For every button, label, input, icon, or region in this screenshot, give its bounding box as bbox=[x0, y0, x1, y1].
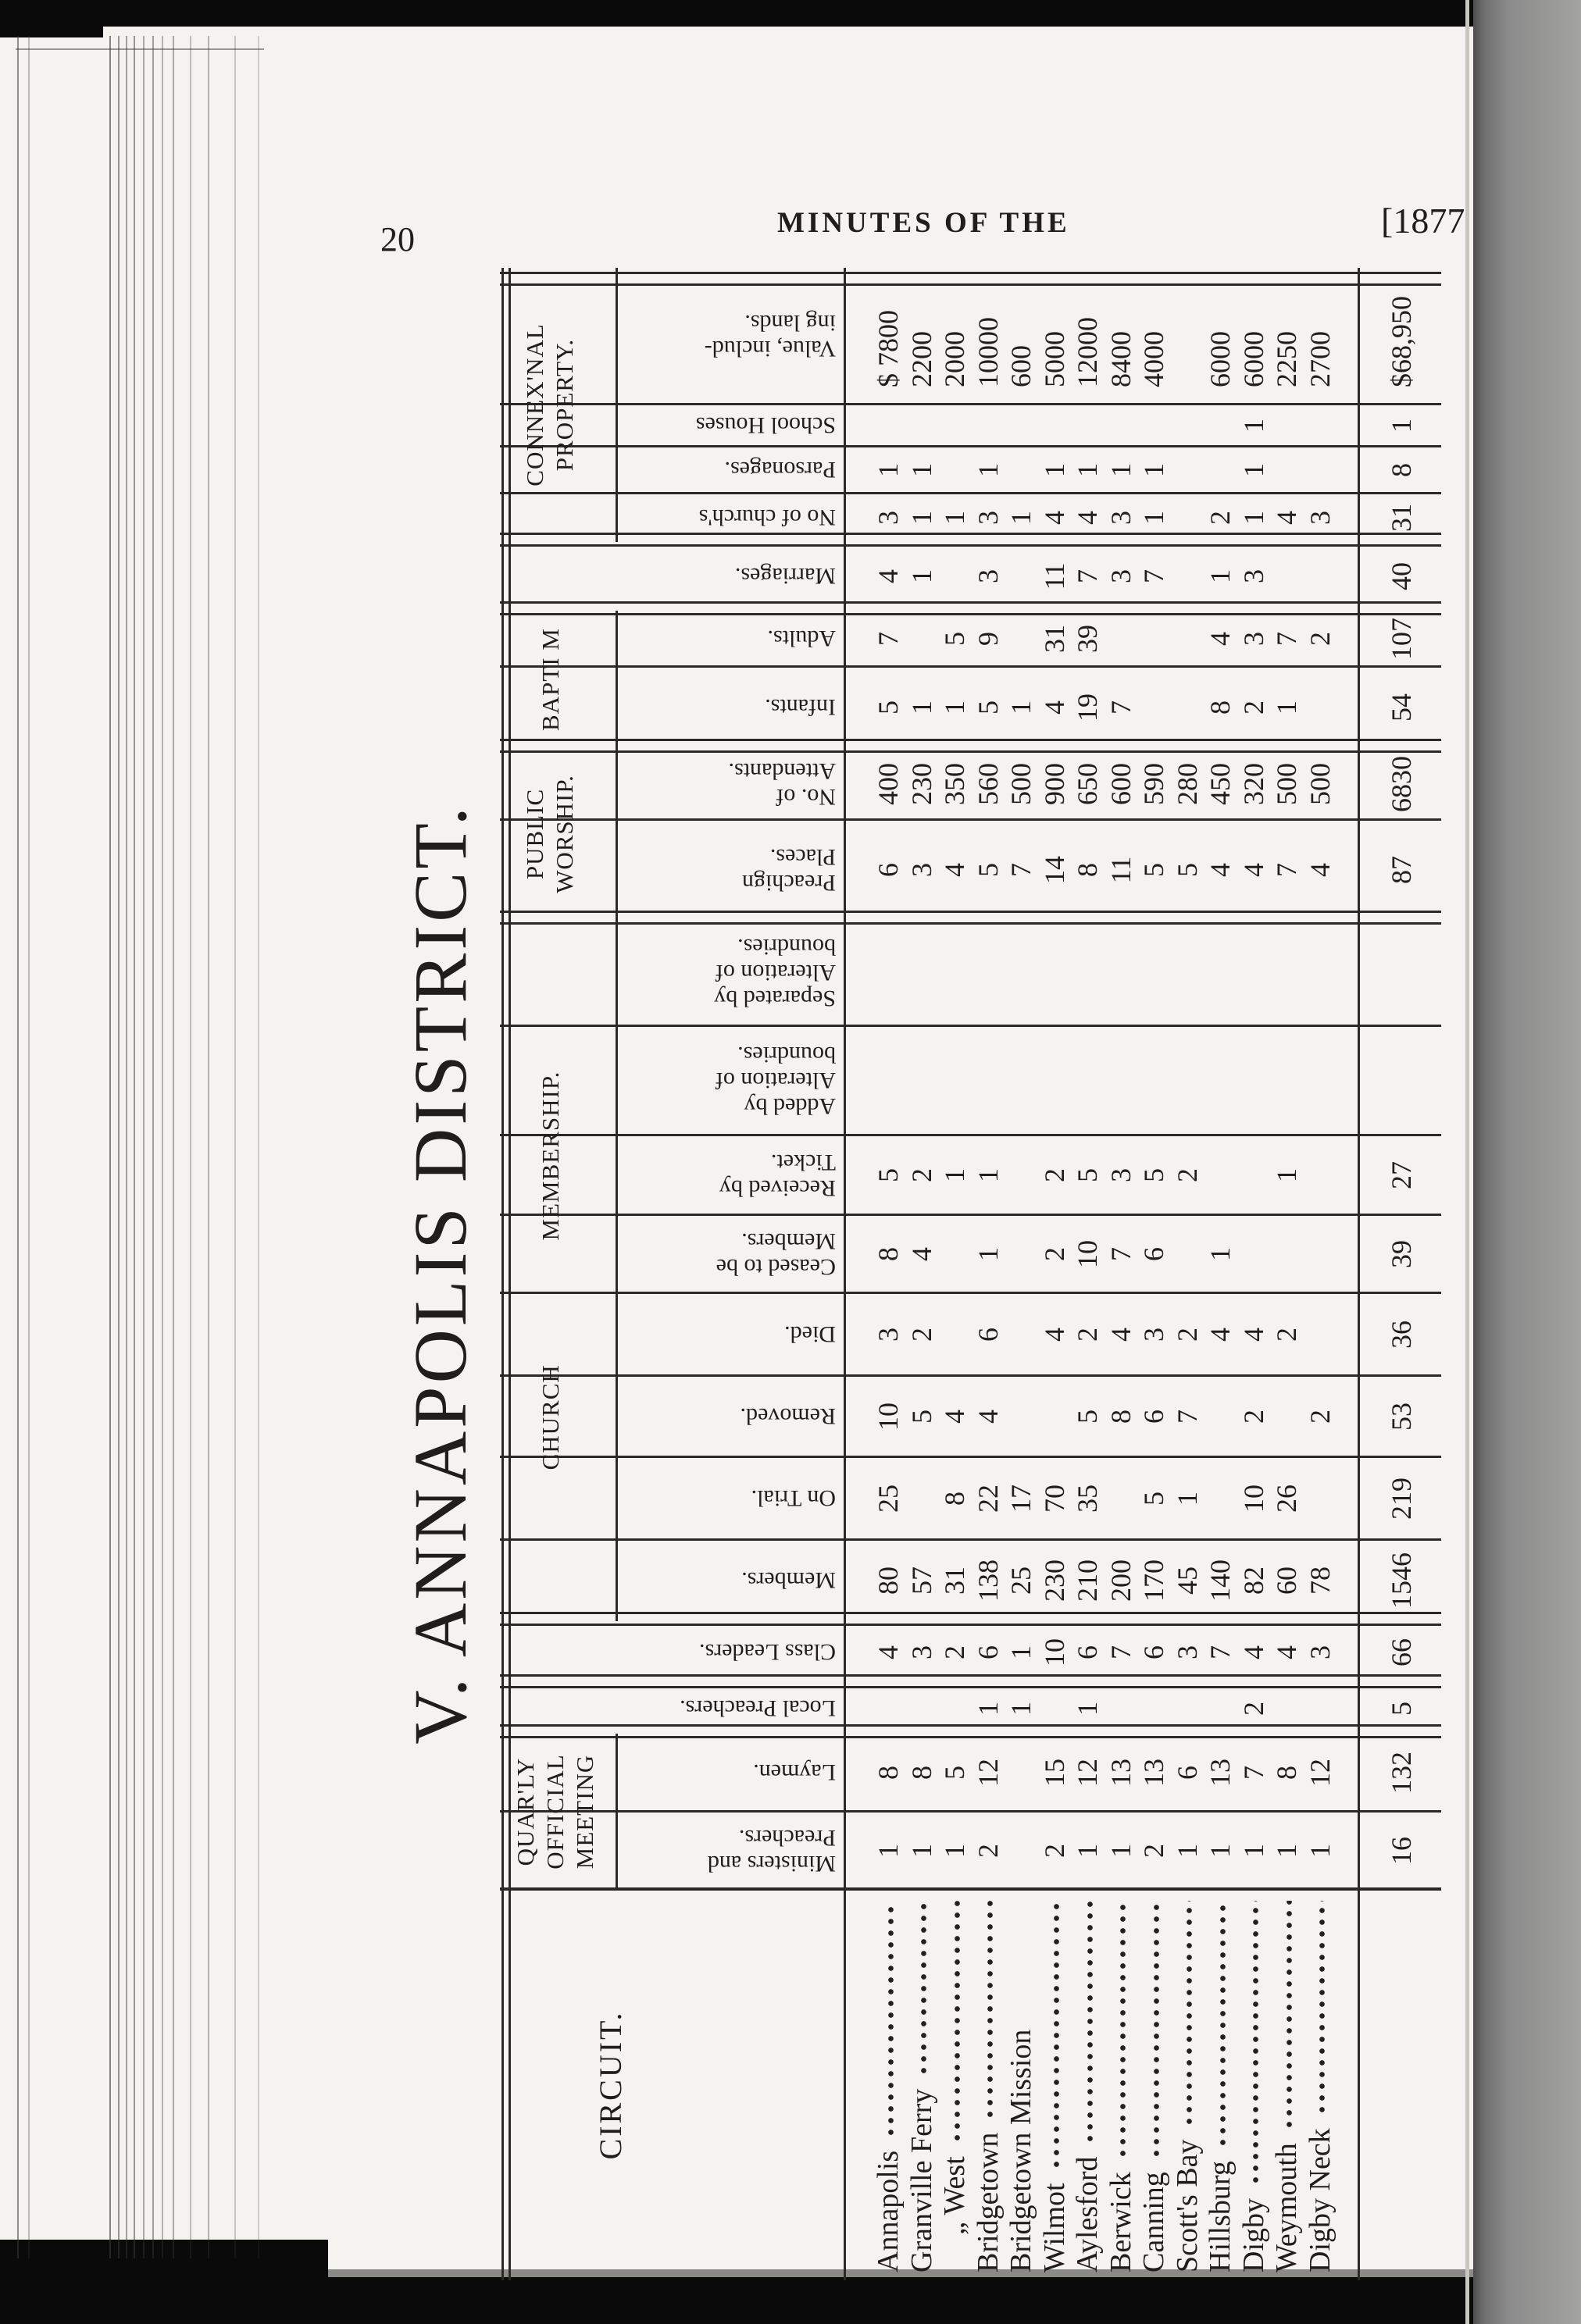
table-cell: 1 bbox=[1270, 1812, 1304, 1890]
column-header: On Trial. bbox=[619, 1457, 844, 1540]
table-cell: 1 bbox=[1038, 447, 1072, 494]
circuit-name: „ West bbox=[938, 2156, 971, 2235]
table-cell: 60 bbox=[1270, 1540, 1304, 1621]
circuit-name-cell: Canning bbox=[1137, 1890, 1171, 2280]
circuit-name-cell: Granville Ferry bbox=[905, 1890, 939, 2280]
table-cell: 5 bbox=[972, 820, 1005, 920]
dot-leader bbox=[1150, 1901, 1162, 2159]
dot-leader bbox=[984, 1901, 997, 2120]
table-cell: 5 bbox=[872, 667, 905, 748]
circuit-name: Berwick bbox=[1105, 2172, 1137, 2272]
table-cell: 1 bbox=[1237, 494, 1271, 542]
scan-black-corner-bottom-left bbox=[0, 2240, 328, 2324]
table-cell: 2 bbox=[1304, 1376, 1337, 1457]
totals-cell: 5 bbox=[1361, 1684, 1441, 1734]
group-divider-rule bbox=[616, 268, 618, 542]
table-cell: 70 bbox=[1038, 1457, 1072, 1540]
table-cell: 25 bbox=[872, 1457, 905, 1540]
running-title: MINUTES OF THE bbox=[777, 206, 1070, 240]
table-cell: 1 bbox=[972, 1215, 1005, 1293]
table-cell: 57 bbox=[905, 1540, 939, 1621]
table-cell: 4 bbox=[1237, 1621, 1271, 1684]
page-edge-line bbox=[118, 36, 120, 2258]
dot-leader bbox=[1250, 1901, 1262, 2186]
table-cell: 2700 bbox=[1304, 268, 1337, 405]
totals-cell: 1546 bbox=[1361, 1540, 1441, 1621]
table-cell: 3 bbox=[1304, 1621, 1337, 1684]
page-number: 20 bbox=[380, 219, 415, 259]
page-edge-line bbox=[109, 36, 111, 2258]
table-cell: 39 bbox=[1071, 611, 1105, 667]
page-edge-line bbox=[173, 36, 174, 2258]
table-cell: 4 bbox=[1237, 820, 1271, 920]
table-cell: 1 bbox=[1105, 447, 1138, 494]
table-cell: 3 bbox=[972, 494, 1005, 542]
table-cell: 7 bbox=[1204, 1621, 1237, 1684]
group-header: PUBLICWORSHIP. bbox=[520, 748, 580, 920]
table-cell: 1 bbox=[1105, 1812, 1138, 1890]
table-cell: 3 bbox=[1304, 494, 1337, 542]
table-cell: 8 bbox=[1105, 1376, 1138, 1457]
table-cell: 10 bbox=[1237, 1457, 1271, 1540]
table-cell: 10000 bbox=[972, 268, 1005, 405]
table-cell: 2 bbox=[1038, 1812, 1072, 1890]
circuit-name-cell: Digby bbox=[1237, 1890, 1271, 2280]
table-cell: 13 bbox=[1137, 1734, 1171, 1812]
circuit-name: Bridgetown bbox=[972, 2133, 1005, 2272]
table-cell: 4 bbox=[1038, 494, 1072, 542]
table-cell: 1 bbox=[1171, 1812, 1204, 1890]
circuit-name-cell: Bridgetown bbox=[972, 1890, 1005, 2280]
page-edge-line bbox=[134, 36, 135, 2258]
table-cell: 1 bbox=[872, 447, 905, 494]
table-cell: 1 bbox=[1005, 667, 1038, 748]
table-cell: 6000 bbox=[1237, 268, 1271, 405]
table-cell: 3 bbox=[972, 542, 1005, 611]
column-header: Removed. bbox=[619, 1376, 844, 1457]
group-divider-rule bbox=[616, 920, 618, 1621]
scan-gray-strip-right bbox=[1473, 0, 1581, 2324]
table-cell: 7 bbox=[1105, 667, 1138, 748]
scan-black-band-top bbox=[0, 0, 1581, 27]
table-cell: 2 bbox=[1038, 1135, 1072, 1215]
circuit-name: Aylesford bbox=[1071, 2157, 1104, 2272]
table-cell: 3 bbox=[1237, 542, 1271, 611]
table-cell: 320 bbox=[1237, 748, 1271, 820]
totals-cell: 40 bbox=[1361, 542, 1441, 611]
page-edge-line bbox=[190, 36, 191, 2258]
table-cell: 6 bbox=[1171, 1734, 1204, 1812]
totals-rule bbox=[1358, 268, 1360, 2280]
page-right-edge bbox=[1465, 0, 1469, 2324]
circuit-name-cell: Bridgetown Mission bbox=[1005, 1890, 1038, 2280]
totals-cell: 6830 bbox=[1361, 748, 1441, 820]
table-cell: 1 bbox=[972, 1135, 1005, 1215]
table-cell: 4 bbox=[1270, 1621, 1304, 1684]
table-cell: 500 bbox=[1005, 748, 1038, 820]
column-header: Members. bbox=[619, 1540, 844, 1621]
dot-leader bbox=[1083, 1901, 1096, 2144]
column-header: Class Leaders. bbox=[516, 1621, 844, 1684]
table-cell: 80 bbox=[872, 1540, 905, 1621]
table-cell: 230 bbox=[1038, 1540, 1072, 1621]
column-header: School Houses bbox=[619, 405, 844, 447]
totals-cell: 36 bbox=[1361, 1293, 1441, 1376]
circuit-name: Digby Neck bbox=[1304, 2128, 1337, 2272]
circuit-name-cell: Berwick bbox=[1105, 1890, 1138, 2280]
table-cell: 7 bbox=[1005, 820, 1038, 920]
table-cell: 12 bbox=[1304, 1734, 1337, 1812]
circuit-name: Bridgetown Mission bbox=[1005, 2030, 1037, 2272]
table-cell: 5000 bbox=[1038, 268, 1072, 405]
table-cell: 1 bbox=[1204, 542, 1237, 611]
table-cell: 11 bbox=[1038, 542, 1072, 611]
totals-cell: 16 bbox=[1361, 1812, 1441, 1890]
group-header: BAPTI M bbox=[536, 611, 566, 748]
table-cell: 8 bbox=[1204, 667, 1237, 748]
table-cell: 3 bbox=[905, 1621, 939, 1684]
table-cell: 9 bbox=[972, 611, 1005, 667]
table-cell: 4 bbox=[1204, 820, 1237, 920]
circuit-name: Weymouth bbox=[1270, 2143, 1303, 2272]
table-title: V. ANNAPOLIS DISTRICT. bbox=[397, 268, 498, 2280]
column-header: Marriages. bbox=[516, 542, 844, 611]
table-top-border bbox=[509, 268, 511, 2280]
table-cell: 2 bbox=[938, 1621, 972, 1684]
table-cell: 450 bbox=[1204, 748, 1237, 820]
table-cell: 1 bbox=[1071, 447, 1105, 494]
table-cell: 230 bbox=[905, 748, 939, 820]
circuit-name: Annapolis bbox=[872, 2151, 905, 2272]
column-header: Ministers andPreachers. bbox=[619, 1812, 844, 1890]
table-cell: 600 bbox=[1105, 748, 1138, 820]
table-cell: 600 bbox=[1005, 268, 1038, 405]
table-cell: 45 bbox=[1171, 1540, 1204, 1621]
table-cell: 10 bbox=[1038, 1621, 1072, 1684]
table-cell: 3 bbox=[1105, 1135, 1138, 1215]
year-reference: [1877 bbox=[1381, 200, 1465, 241]
table-cell: 1 bbox=[1237, 405, 1271, 447]
totals-cell: $68,950 bbox=[1361, 268, 1441, 405]
table-cell: 280 bbox=[1171, 748, 1204, 820]
page-edge-line bbox=[234, 36, 236, 2258]
table-cell: 2 bbox=[1237, 1684, 1271, 1734]
table-cell: 35 bbox=[1071, 1457, 1105, 1540]
table-cell: 1 bbox=[938, 494, 972, 542]
table-cell: 6 bbox=[972, 1621, 1005, 1684]
column-header: Value, includ-ing lands. bbox=[619, 268, 844, 405]
table-cell: 7 bbox=[1171, 1376, 1204, 1457]
table-cell: 19 bbox=[1071, 667, 1105, 748]
table-cell: 8 bbox=[1071, 820, 1105, 920]
table-cell: 4 bbox=[872, 542, 905, 611]
table-cell: 140 bbox=[1204, 1540, 1237, 1621]
table-cell: 13 bbox=[1105, 1734, 1138, 1812]
table-cell: 1 bbox=[905, 447, 939, 494]
totals-cell: 39 bbox=[1361, 1215, 1441, 1293]
table-cell: 4 bbox=[1071, 494, 1105, 542]
dot-leader bbox=[1316, 1901, 1329, 2115]
table-cell: 8 bbox=[938, 1457, 972, 1540]
table-cell: 500 bbox=[1270, 748, 1304, 820]
column-header: No of church's bbox=[619, 494, 844, 542]
table-cell: 22 bbox=[972, 1457, 1005, 1540]
circuit-name: Canning bbox=[1137, 2172, 1170, 2272]
table-cell: 11 bbox=[1105, 820, 1138, 920]
table-cell: 6000 bbox=[1204, 268, 1237, 405]
table-cell: 4 bbox=[1204, 1293, 1237, 1376]
table-cell: 1 bbox=[1137, 494, 1171, 542]
totals-cell: 219 bbox=[1361, 1457, 1441, 1540]
dot-leader bbox=[1051, 1901, 1063, 2170]
table-cell: 5 bbox=[872, 1135, 905, 1215]
table-cell: 10 bbox=[872, 1376, 905, 1457]
dot-leader bbox=[918, 1901, 930, 2076]
table-cell: 1 bbox=[972, 447, 1005, 494]
table-cell: 3 bbox=[1105, 542, 1138, 611]
page-edge-line bbox=[28, 36, 30, 2258]
table-cell: 1 bbox=[1304, 1812, 1337, 1890]
column-header: Ceased to beMembers. bbox=[619, 1215, 844, 1293]
table-cell: 4 bbox=[872, 1621, 905, 1684]
circuit-name-cell: Weymouth bbox=[1270, 1890, 1304, 2280]
table-cell: 10 bbox=[1071, 1215, 1105, 1293]
table-cell: 1 bbox=[1137, 447, 1171, 494]
column-header: Died. bbox=[619, 1293, 844, 1376]
column-header: Received byTicket. bbox=[619, 1135, 844, 1215]
table-cell: 1 bbox=[1005, 1621, 1038, 1684]
column-header: No. ofAttendants. bbox=[619, 748, 844, 820]
scanned-book-page: { "page": { "number": "20", "running_tit… bbox=[0, 0, 1581, 2324]
table-cell: 1 bbox=[938, 667, 972, 748]
table-cell: 14 bbox=[1038, 820, 1072, 920]
table-cell: 900 bbox=[1038, 748, 1072, 820]
table-cell: 1 bbox=[1005, 494, 1038, 542]
table-cell: 2 bbox=[1038, 1215, 1072, 1293]
table-cell: 5 bbox=[1137, 1457, 1171, 1540]
table-cell: 2 bbox=[1237, 667, 1271, 748]
table-cell: 4 bbox=[1304, 820, 1337, 920]
table-cell: 5 bbox=[905, 1376, 939, 1457]
table-cell: 590 bbox=[1137, 748, 1171, 820]
circuit-name-cell: Scott's Bay bbox=[1171, 1890, 1204, 2280]
table-cell: 7 bbox=[1071, 542, 1105, 611]
circuit-name: Wilmot bbox=[1038, 2183, 1071, 2272]
table-cell: 12 bbox=[972, 1734, 1005, 1812]
table-cell: 1 bbox=[905, 1812, 939, 1890]
table-cell: 8400 bbox=[1105, 268, 1138, 405]
group-divider-rule bbox=[616, 611, 618, 748]
table-cell: 3 bbox=[872, 1293, 905, 1376]
table-cell: 4 bbox=[1038, 1293, 1072, 1376]
table-cell: 78 bbox=[1304, 1540, 1337, 1621]
totals-cell: 8 bbox=[1361, 447, 1441, 494]
column-header: Infants. bbox=[619, 667, 844, 748]
column-header: Adults. bbox=[619, 611, 844, 667]
page-edge-line bbox=[126, 36, 127, 2258]
table-cell: 2 bbox=[1137, 1812, 1171, 1890]
totals-cell: 87 bbox=[1361, 820, 1441, 920]
table-cell: 4 bbox=[905, 1215, 939, 1293]
table-cell: 2 bbox=[905, 1135, 939, 1215]
table-cell: 7 bbox=[1105, 1215, 1138, 1293]
table-cell: 3 bbox=[905, 820, 939, 920]
table-cell: 7 bbox=[872, 611, 905, 667]
table-cell: 3 bbox=[1137, 1293, 1171, 1376]
table-cell: 2 bbox=[1237, 1376, 1271, 1457]
table-cell: 31 bbox=[1038, 611, 1072, 667]
table-cell: 5 bbox=[1137, 1135, 1171, 1215]
dot-leader bbox=[951, 1901, 963, 2144]
table-cell: 1 bbox=[905, 494, 939, 542]
table-cell: 138 bbox=[972, 1540, 1005, 1621]
table-cell: 6 bbox=[1137, 1621, 1171, 1684]
circuit-name-cell: „ West bbox=[938, 1890, 972, 2280]
group-header: CHURCH MEMBERSHIP. bbox=[536, 920, 566, 1621]
table-cell: 7 bbox=[1270, 820, 1304, 920]
table-cell: 17 bbox=[1005, 1457, 1038, 1540]
table-cell: 2 bbox=[972, 1812, 1005, 1890]
table-cell: 1 bbox=[972, 1684, 1005, 1734]
table-cell: 7 bbox=[1105, 1621, 1138, 1684]
table-cell: 13 bbox=[1204, 1734, 1237, 1812]
table-cell: 350 bbox=[938, 748, 972, 820]
totals-cell: 66 bbox=[1361, 1621, 1441, 1684]
table-cell: 1 bbox=[905, 542, 939, 611]
circuit-name-cell: Annapolis bbox=[872, 1890, 905, 2280]
table-cell: 4 bbox=[1204, 611, 1237, 667]
table-cell: 1 bbox=[1237, 1812, 1271, 1890]
circuit-name: Digby bbox=[1237, 2198, 1270, 2272]
table-cell: 12 bbox=[1071, 1734, 1105, 1812]
table-cell: 8 bbox=[905, 1734, 939, 1812]
table-cell: $ 7800 bbox=[872, 268, 905, 405]
column-header: Added byAlteration ofboundries. bbox=[619, 1026, 844, 1135]
table-cell: 4 bbox=[1237, 1293, 1271, 1376]
circuit-name: Granville Ferry bbox=[905, 2089, 938, 2272]
dot-leader bbox=[1283, 1901, 1295, 2130]
circuit-name-cell: Wilmot bbox=[1038, 1890, 1072, 2280]
column-header: Laymen. bbox=[619, 1734, 844, 1812]
table-cell: 7 bbox=[1137, 542, 1171, 611]
table-cell: 2200 bbox=[905, 268, 939, 405]
table-cell: 1 bbox=[938, 1812, 972, 1890]
dot-leader bbox=[1183, 1901, 1196, 2127]
page-edge-line bbox=[143, 36, 145, 2258]
table-cell: 1 bbox=[938, 1135, 972, 1215]
table-cell: 1 bbox=[1270, 1135, 1304, 1215]
totals-cell: 132 bbox=[1361, 1734, 1441, 1812]
table-cell: 5 bbox=[938, 611, 972, 667]
table-cell: 1 bbox=[1204, 1215, 1237, 1293]
table-cell: 82 bbox=[1237, 1540, 1271, 1621]
table-cell: 6 bbox=[1137, 1215, 1171, 1293]
table-cell: 5 bbox=[1071, 1376, 1105, 1457]
table-cell: 170 bbox=[1137, 1540, 1171, 1621]
group-divider-rule bbox=[616, 748, 618, 920]
page-corner-edge bbox=[16, 48, 264, 50]
table-cell: 5 bbox=[1071, 1135, 1105, 1215]
dot-leader bbox=[1216, 1901, 1229, 2148]
group-divider-rule bbox=[616, 1734, 618, 1890]
table-cell: 1 bbox=[1171, 1457, 1204, 1540]
table-cell: 5 bbox=[938, 1734, 972, 1812]
rotated-table-wrapper: V. ANNAPOLIS DISTRICT. QUAR'LYOFFICIALME… bbox=[391, 268, 1441, 2280]
table-cell: 3 bbox=[872, 494, 905, 542]
column-header: PreachignPlaces. bbox=[619, 820, 844, 920]
circuit-name: Scott's Bay bbox=[1171, 2140, 1204, 2272]
table-cell: 3 bbox=[1171, 1621, 1204, 1684]
header-bottom-rule bbox=[844, 268, 846, 2280]
table-cell: 1 bbox=[905, 667, 939, 748]
table-cell: 2 bbox=[1171, 1293, 1204, 1376]
table-cell: 3 bbox=[1105, 494, 1138, 542]
table-cell: 1 bbox=[1270, 667, 1304, 748]
table-top-border bbox=[501, 268, 504, 2280]
table-cell: 2 bbox=[1204, 494, 1237, 542]
table-cell: 2 bbox=[1071, 1293, 1105, 1376]
table-cell: 26 bbox=[1270, 1457, 1304, 1540]
table-cell: 7 bbox=[1237, 1734, 1271, 1812]
circuit-name-cell: Aylesford bbox=[1071, 1890, 1105, 2280]
column-header: Parsonages. bbox=[619, 447, 844, 494]
table-cell: 4 bbox=[1270, 494, 1304, 542]
totals-cell: 54 bbox=[1361, 667, 1441, 748]
table-cell: 2 bbox=[905, 1293, 939, 1376]
table-cell: 2250 bbox=[1270, 268, 1304, 405]
table-cell: 1 bbox=[1005, 1684, 1038, 1734]
table-cell: 2 bbox=[1270, 1293, 1304, 1376]
table-cell: 4000 bbox=[1137, 268, 1171, 405]
table-cell: 15 bbox=[1038, 1734, 1072, 1812]
table-cell: 4 bbox=[1105, 1293, 1138, 1376]
totals-cell: 53 bbox=[1361, 1376, 1441, 1457]
table-cell: 25 bbox=[1005, 1540, 1038, 1621]
table-cell: 5 bbox=[1171, 820, 1204, 920]
table-cell: 3 bbox=[1237, 611, 1271, 667]
dot-leader bbox=[884, 1901, 897, 2138]
page-edge-line bbox=[17, 36, 19, 2258]
column-header-circuit: CIRCUIT. bbox=[592, 1890, 629, 2280]
circuit-name-cell: Digby Neck bbox=[1304, 1890, 1337, 2280]
table-cell: 5 bbox=[972, 667, 1005, 748]
table-cell: 1 bbox=[1071, 1812, 1105, 1890]
table-cell: 31 bbox=[938, 1540, 972, 1621]
table-cell: 200 bbox=[1105, 1540, 1138, 1621]
circuit-name: Hillsburg bbox=[1204, 2161, 1237, 2272]
table-cell: 8 bbox=[872, 1215, 905, 1293]
table-cell: 8 bbox=[872, 1734, 905, 1812]
table-cell: 2 bbox=[1171, 1135, 1204, 1215]
page-edge-line bbox=[258, 36, 259, 2258]
table-cell: 4 bbox=[972, 1376, 1005, 1457]
page-edge-line bbox=[152, 36, 154, 2258]
table-cell: 4 bbox=[938, 1376, 972, 1457]
table-cell: 6 bbox=[1137, 1376, 1171, 1457]
table-cell: 1 bbox=[872, 1812, 905, 1890]
table-cell: 2 bbox=[1304, 611, 1337, 667]
table-cell: 1 bbox=[1204, 1812, 1237, 1890]
table-cell: 400 bbox=[872, 748, 905, 820]
totals-cell: 31 bbox=[1361, 494, 1441, 542]
table-cell: 8 bbox=[1270, 1734, 1304, 1812]
table-cell: 560 bbox=[972, 748, 1005, 820]
table-cell: 650 bbox=[1071, 748, 1105, 820]
dot-leader bbox=[1117, 1901, 1130, 2159]
district-table: QUAR'LYOFFICIALMEETINGCHURCH MEMBERSHIP.… bbox=[500, 268, 1441, 2280]
totals-cell: 27 bbox=[1361, 1135, 1441, 1215]
table-cell: 5 bbox=[1137, 820, 1171, 920]
